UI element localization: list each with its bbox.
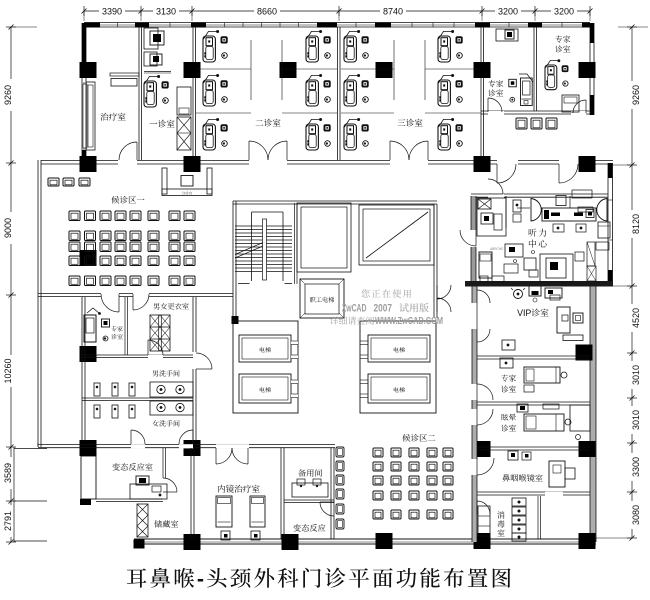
svg-text:4520: 4520 xyxy=(631,308,641,328)
svg-text:3010: 3010 xyxy=(631,365,641,385)
svg-text:3390: 3390 xyxy=(102,7,122,17)
svg-text:VIP: VIP xyxy=(517,308,531,318)
svg-text:3589: 3589 xyxy=(3,463,13,483)
svg-text:9260: 9260 xyxy=(3,85,13,105)
svg-text:WWW.ZwCAD.COM: WWW.ZwCAD.COM xyxy=(375,316,443,327)
svg-text:10260: 10260 xyxy=(3,358,13,383)
svg-text:2007: 2007 xyxy=(374,303,393,315)
svg-text:9000: 9000 xyxy=(3,218,13,238)
svg-text:ZwCAD: ZwCAD xyxy=(342,303,367,315)
svg-text:3130: 3130 xyxy=(156,7,176,17)
svg-text:2791: 2791 xyxy=(3,511,13,531)
svg-text:3200: 3200 xyxy=(554,7,574,17)
svg-text:ABRCHE: ABRCHE xyxy=(490,247,503,251)
svg-text:-: - xyxy=(197,567,206,591)
svg-text:8660: 8660 xyxy=(257,7,277,17)
svg-text:3300: 3300 xyxy=(631,457,641,477)
svg-text:9260: 9260 xyxy=(631,85,641,105)
svg-text:3080: 3080 xyxy=(631,505,641,525)
svg-text:8120: 8120 xyxy=(631,214,641,234)
svg-text:3200: 3200 xyxy=(498,7,518,17)
svg-text:8740: 8740 xyxy=(383,7,403,17)
svg-text:3010: 3010 xyxy=(631,410,641,430)
